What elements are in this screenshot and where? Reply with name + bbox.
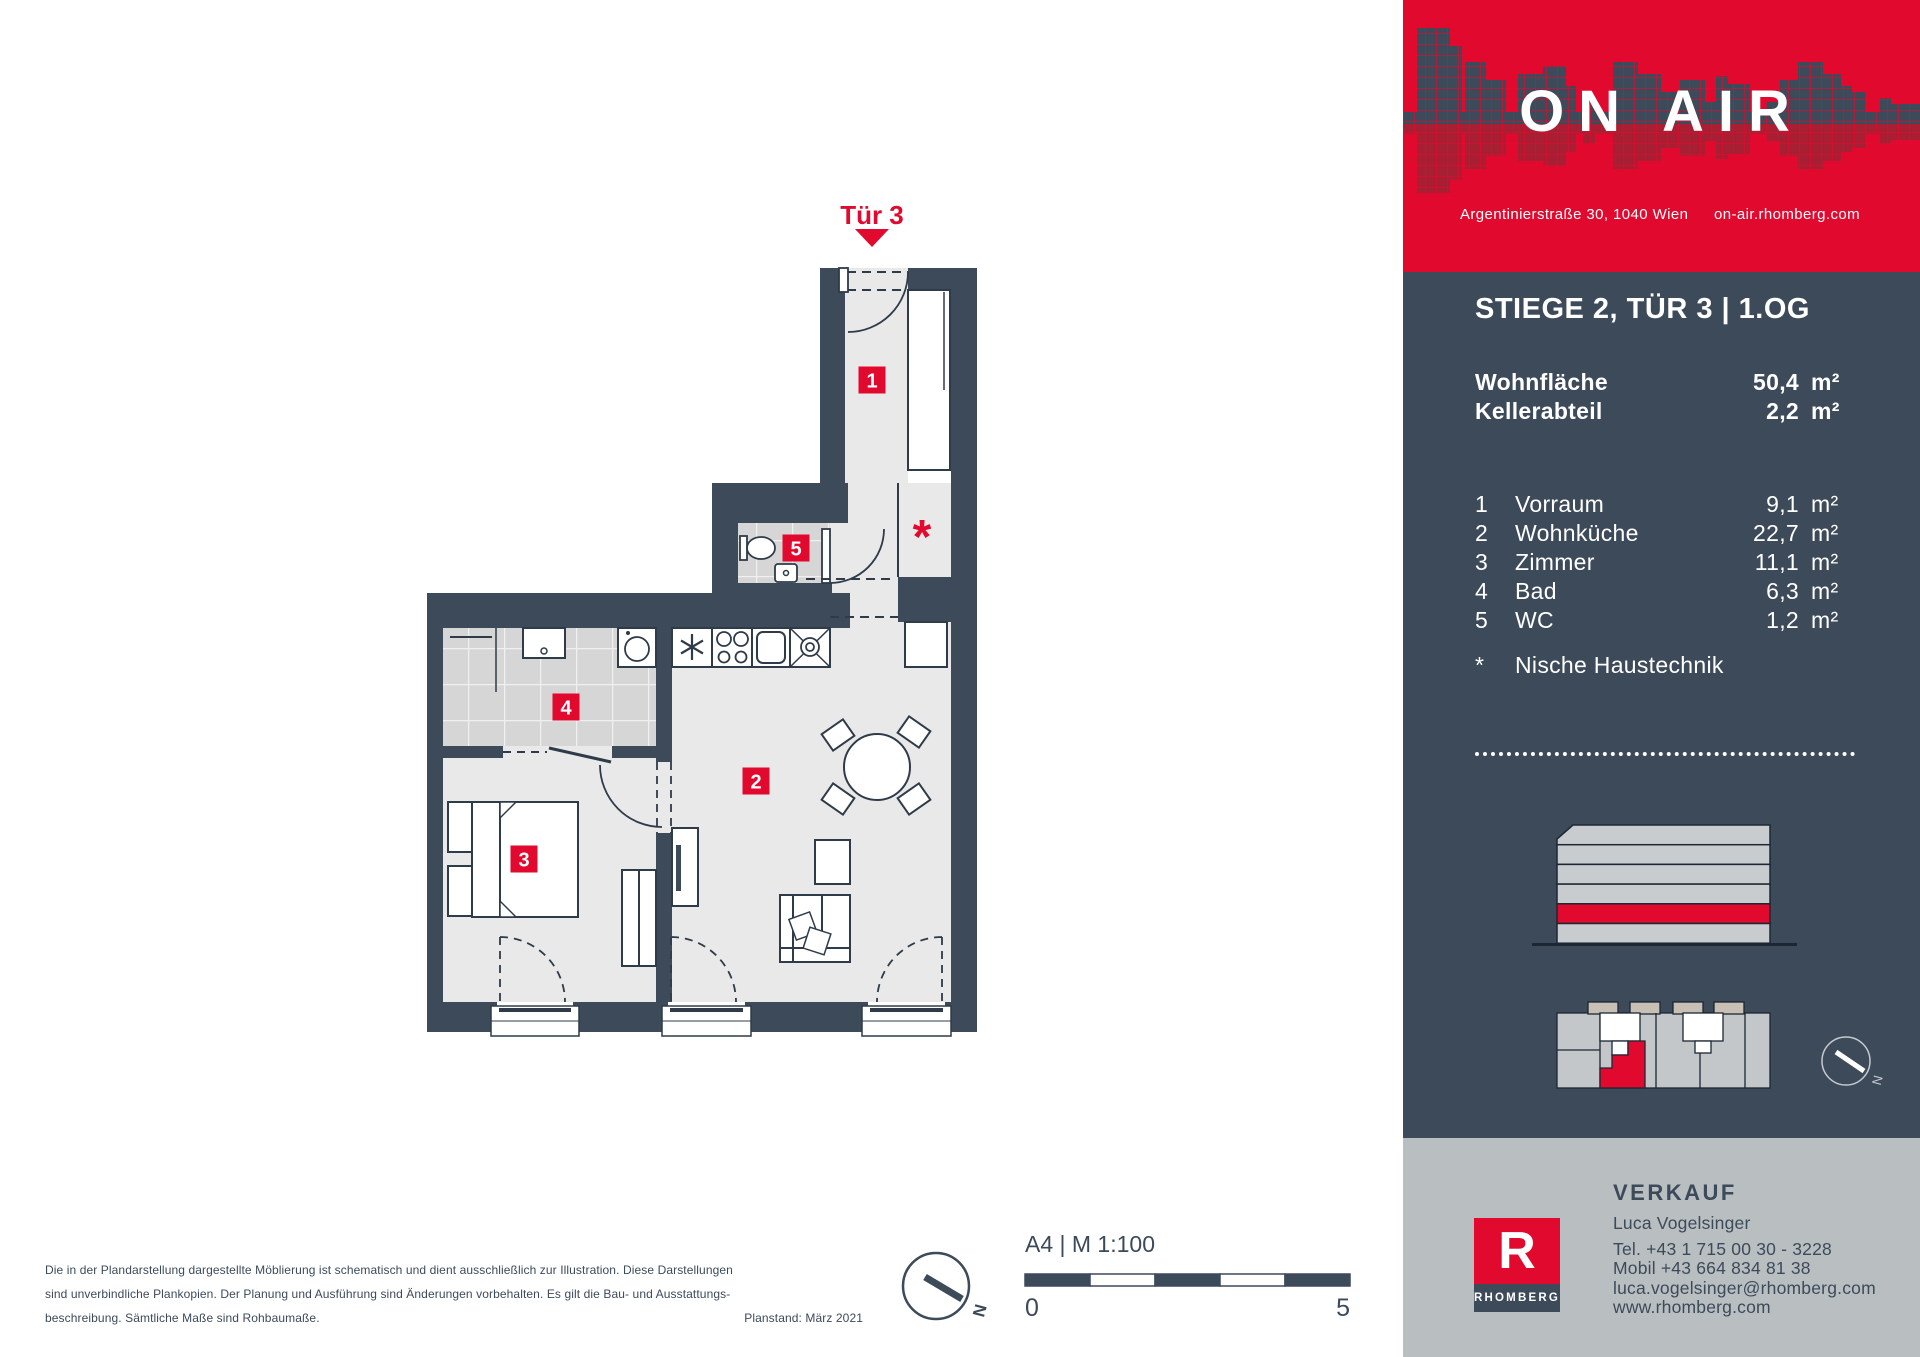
contact-mobile: Mobil +43 664 834 81 38 <box>1613 1259 1876 1279</box>
sidebar-compass: N <box>1822 1037 1886 1087</box>
building-elevation <box>1532 825 1797 945</box>
disclaimer-line1: Die in der Plandarstellung dargestellte … <box>45 1258 863 1282</box>
entrance-marker: Tür 3 <box>840 200 904 247</box>
scale-bar-title: A4 | M 1:100 <box>1025 1231 1155 1257</box>
scale-bar: A4 | M 1:100 0 5 <box>1015 1228 1360 1323</box>
project-address: Argentinierstraße 30, 1040 Wien <box>1460 206 1688 223</box>
sidebar-unit-info: STIEGE 2, TÜR 3 | 1.OG Wohnfläche 50,4 m… <box>1403 272 1920 1138</box>
room-list: 1 Vorraum 9,1 m² 2 Wohnküche 22,7 m² 3 Z… <box>1475 490 1855 635</box>
room-list-item: 4 Bad 6,3 m² <box>1475 577 1855 606</box>
scale-start: 0 <box>1025 1294 1039 1322</box>
plan-compass: N <box>895 1245 995 1325</box>
scale-end: 5 <box>1336 1294 1350 1322</box>
building-diagrams: N <box>1470 800 1920 1110</box>
sidebar-contact-footer: R RHOMBERG VERKAUF Luca Vogelsinger Tel.… <box>1403 1138 1920 1357</box>
disclaimer-line3: beschreibung. Sämtliche Maße sind Rohbau… <box>45 1306 320 1330</box>
unit-title: STIEGE 2, TÜR 3 | 1.OG <box>1475 294 1855 324</box>
entrance-label: Tür 3 <box>840 200 904 230</box>
rhomberg-logo-wordmark: RHOMBERG <box>1474 1284 1560 1312</box>
room1-label: 1 <box>866 371 877 393</box>
floor-key-plan <box>1557 1002 1770 1088</box>
summary-row: Wohnfläche 50,4 m² <box>1475 368 1855 397</box>
sidebar-compass-north: N <box>1869 1074 1886 1087</box>
plan-compass-north: N <box>969 1302 991 1319</box>
disclaimer-line2: sind unverbindliche Plankopien. Der Plan… <box>45 1282 863 1306</box>
brand-logo-text: ON AIR <box>1403 78 1920 145</box>
plan-date: Planstand: März 2021 <box>744 1306 863 1330</box>
dotted-divider <box>1475 752 1855 756</box>
entrance-arrow-icon <box>855 229 889 247</box>
room2-label: 2 <box>750 772 761 794</box>
rhomberg-logo-letter: R <box>1498 1221 1536 1281</box>
contact-details: Luca Vogelsinger Tel. +43 1 715 00 30 - … <box>1613 1214 1876 1318</box>
contact-email: luca.vogelsinger@rhomberg.com <box>1613 1279 1876 1299</box>
floor-plan-drawing: Tür 3 1 2 3 4 5 * <box>390 195 1010 1060</box>
contact-website: www.rhomberg.com <box>1613 1298 1876 1318</box>
room-list-item: 5 WC 1,2 m² <box>1475 606 1855 635</box>
sidebar-brand-header: ON AIR Argentinierstraße 30, 1040 Wien o… <box>1403 0 1920 272</box>
disclaimer: Die in der Plandarstellung dargestellte … <box>45 1258 863 1330</box>
contact-heading: VERKAUF <box>1613 1180 1737 1206</box>
summary-row: Kellerabteil 2,2 m² <box>1475 397 1855 426</box>
room-list-item: 2 Wohnküche 22,7 m² <box>1475 519 1855 548</box>
room5-label: 5 <box>790 539 801 561</box>
floorplan-sheet: Tür 3 1 2 3 4 5 * N A4 | M 1:100 <box>0 0 1920 1357</box>
room-list-item: 1 Vorraum 9,1 m² <box>1475 490 1855 519</box>
project-website: on-air.rhomberg.com <box>1714 206 1860 223</box>
contact-name: Luca Vogelsinger <box>1613 1214 1876 1234</box>
room3-label: 3 <box>518 850 529 872</box>
contact-phone: Tel. +43 1 715 00 30 - 3228 <box>1613 1240 1876 1260</box>
area-summary: Wohnfläche 50,4 m² Kellerabteil 2,2 m² <box>1475 368 1855 426</box>
rhomberg-logo-icon: R <box>1474 1218 1560 1284</box>
niche-note: * Nische Haustechnik <box>1475 651 1855 680</box>
room4-label: 4 <box>560 698 572 720</box>
room-list-item: 3 Zimmer 11,1 m² <box>1475 548 1855 577</box>
niche-symbol: * <box>913 511 932 564</box>
